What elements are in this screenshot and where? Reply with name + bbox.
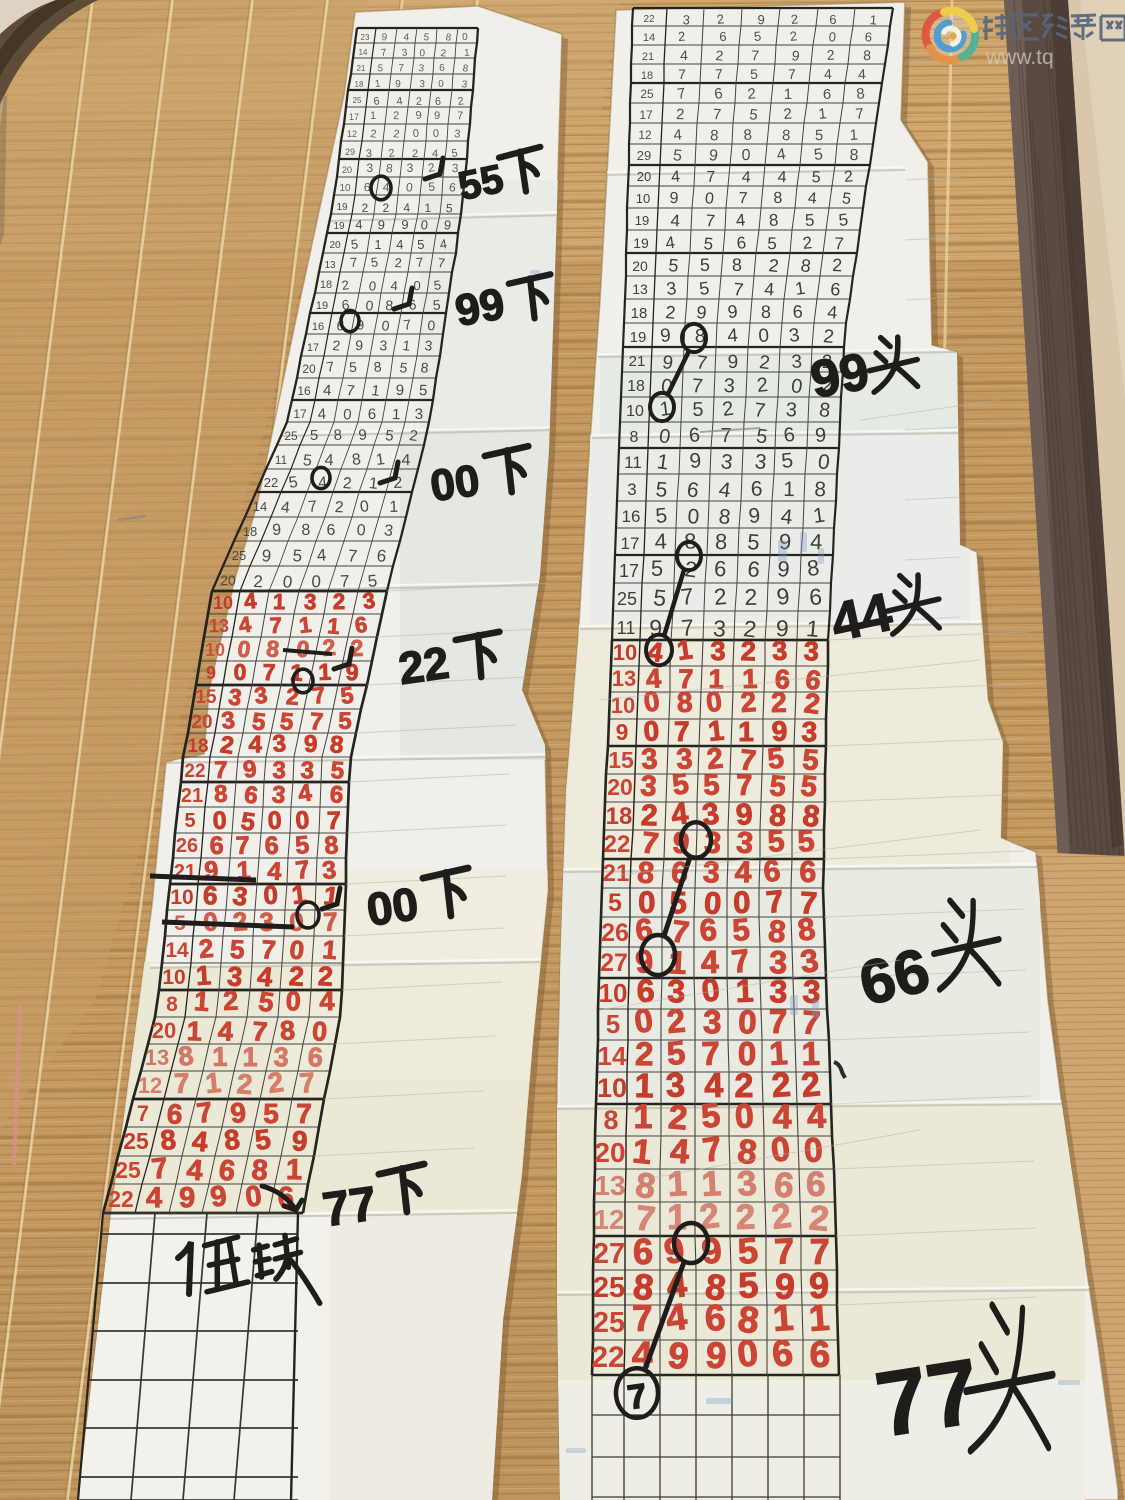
svg-text:21: 21 [629, 353, 646, 370]
svg-text:25: 25 [617, 589, 637, 609]
svg-text:18: 18 [187, 736, 208, 757]
svg-text:12: 12 [347, 129, 357, 139]
svg-text:18: 18 [243, 524, 257, 539]
svg-text:18: 18 [641, 70, 653, 82]
svg-text:10: 10 [636, 191, 650, 206]
svg-text:12: 12 [593, 1204, 624, 1235]
svg-text:13: 13 [209, 616, 229, 636]
svg-text:15: 15 [608, 747, 634, 773]
svg-text:21: 21 [357, 64, 366, 73]
svg-text:14: 14 [598, 1041, 627, 1071]
svg-text:18: 18 [631, 305, 648, 322]
svg-text:20: 20 [329, 240, 341, 251]
svg-text:29: 29 [345, 147, 355, 157]
svg-text:25: 25 [115, 1157, 141, 1183]
svg-text:25: 25 [640, 87, 654, 101]
svg-text:8: 8 [166, 993, 178, 1016]
svg-text:16: 16 [312, 321, 324, 333]
svg-text:13: 13 [594, 1170, 625, 1201]
svg-text:20: 20 [632, 258, 648, 274]
svg-text:18: 18 [627, 378, 645, 395]
svg-text:22: 22 [184, 761, 205, 782]
svg-text:00: 00 [427, 456, 482, 511]
svg-text:18: 18 [355, 80, 364, 89]
svg-text:8: 8 [630, 429, 639, 446]
svg-text:99: 99 [806, 342, 873, 409]
svg-text:22: 22 [643, 14, 655, 25]
svg-text:19: 19 [635, 213, 649, 228]
svg-text:22: 22 [604, 831, 631, 858]
svg-text:11: 11 [624, 453, 642, 472]
svg-text:14: 14 [643, 32, 655, 44]
svg-text:10: 10 [626, 403, 644, 420]
svg-text:21: 21 [642, 51, 654, 63]
svg-text:20: 20 [637, 169, 651, 184]
svg-text:16: 16 [622, 507, 641, 526]
svg-text:11: 11 [617, 618, 636, 638]
svg-text:20: 20 [342, 165, 352, 175]
svg-text:19: 19 [633, 235, 649, 251]
svg-text:20: 20 [191, 712, 212, 733]
svg-text:10: 10 [205, 640, 225, 660]
svg-text:www.tq: www.tq [985, 46, 1054, 69]
svg-text:14: 14 [253, 499, 267, 514]
svg-text:27: 27 [593, 1238, 625, 1270]
svg-text:26: 26 [601, 919, 629, 947]
svg-text:13: 13 [145, 1045, 169, 1070]
svg-text:25: 25 [353, 96, 362, 105]
svg-text:7: 7 [137, 1101, 149, 1126]
svg-text:77: 77 [869, 1340, 986, 1457]
svg-text:21: 21 [603, 860, 630, 887]
svg-text:17: 17 [639, 108, 653, 122]
svg-text:11: 11 [275, 453, 288, 467]
svg-text:20: 20 [594, 1137, 625, 1168]
svg-text:10: 10 [613, 640, 637, 665]
svg-text:9: 9 [616, 719, 629, 745]
svg-text:8: 8 [603, 1105, 618, 1135]
svg-text:25: 25 [232, 548, 246, 563]
svg-text:44: 44 [826, 582, 897, 653]
svg-text:10: 10 [170, 886, 193, 909]
svg-text:19: 19 [333, 221, 345, 232]
svg-text:25: 25 [593, 1307, 625, 1339]
svg-text:17: 17 [293, 407, 307, 421]
svg-text:27: 27 [600, 949, 628, 977]
svg-text:77: 77 [320, 1177, 380, 1237]
svg-text:10: 10 [339, 183, 351, 194]
svg-text:22: 22 [395, 637, 452, 694]
svg-text:19: 19 [630, 329, 647, 346]
svg-text:20: 20 [302, 362, 316, 376]
svg-text:20: 20 [607, 774, 633, 800]
svg-text:17: 17 [349, 112, 359, 122]
svg-text:22: 22 [264, 475, 278, 490]
svg-text:10: 10 [162, 966, 185, 989]
svg-text:22: 22 [108, 1186, 134, 1212]
svg-text:17: 17 [307, 342, 319, 354]
svg-text:10: 10 [597, 1073, 627, 1103]
svg-text:21: 21 [181, 785, 203, 807]
svg-text:13: 13 [632, 281, 648, 297]
svg-text:15: 15 [195, 687, 217, 708]
svg-text:14: 14 [359, 48, 368, 57]
svg-text:19: 19 [336, 202, 348, 213]
svg-text:19: 19 [316, 300, 328, 312]
svg-text:18: 18 [320, 279, 332, 291]
svg-text:12: 12 [138, 1073, 162, 1098]
svg-text:5: 5 [608, 889, 622, 917]
svg-text:18: 18 [606, 803, 633, 830]
svg-text:26: 26 [176, 835, 198, 857]
svg-text:10: 10 [213, 593, 233, 613]
svg-text:9: 9 [206, 663, 216, 683]
svg-text:3: 3 [627, 480, 636, 499]
svg-text:5: 5 [184, 810, 195, 832]
svg-text:55: 55 [455, 157, 508, 209]
svg-text:12: 12 [638, 128, 652, 142]
svg-text:99: 99 [452, 279, 509, 336]
svg-text:29: 29 [637, 148, 651, 163]
svg-text:17: 17 [621, 534, 640, 553]
svg-text:13: 13 [324, 260, 336, 271]
svg-text:16: 16 [297, 384, 311, 398]
svg-text:10: 10 [599, 978, 628, 1008]
svg-text:14: 14 [165, 939, 189, 962]
svg-text:20: 20 [152, 1018, 176, 1043]
svg-text:25: 25 [123, 1128, 149, 1154]
svg-text:25: 25 [593, 1272, 625, 1304]
svg-text:13: 13 [612, 666, 636, 691]
svg-text:00: 00 [363, 877, 421, 936]
svg-text:20: 20 [220, 572, 236, 588]
svg-text:17: 17 [619, 561, 639, 581]
svg-text:5: 5 [606, 1009, 620, 1039]
svg-text:25: 25 [284, 429, 298, 443]
svg-text:22: 22 [591, 1341, 624, 1374]
svg-text:23: 23 [361, 33, 370, 42]
